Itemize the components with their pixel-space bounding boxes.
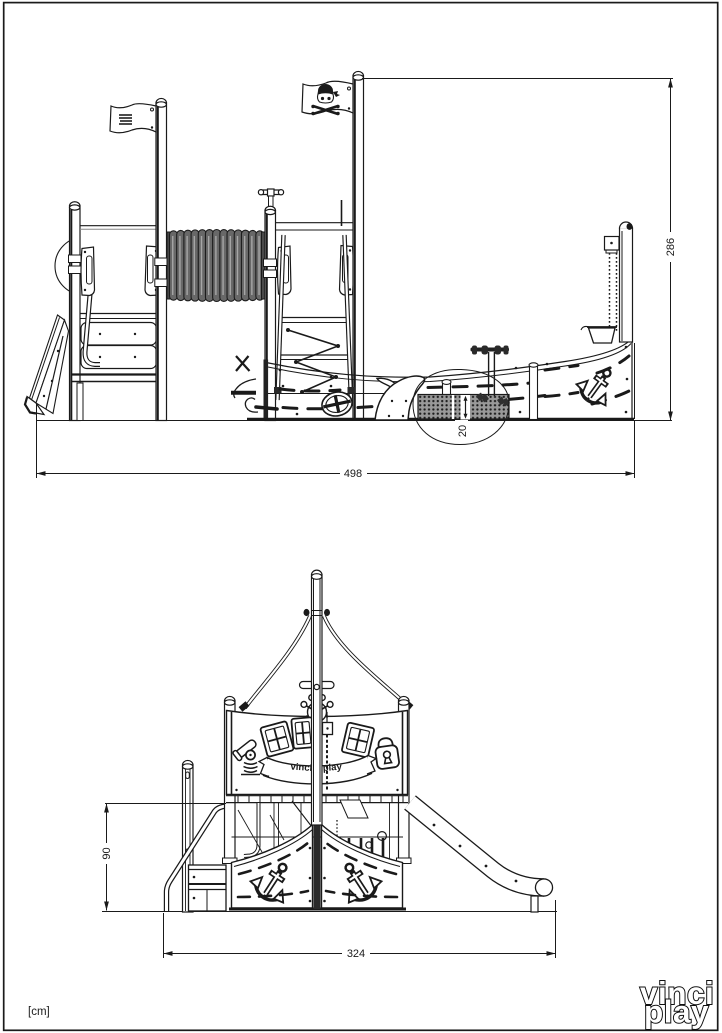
svg-text:vinci: vinci [290, 762, 312, 774]
svg-text:286: 286 [665, 238, 677, 256]
svg-text:play: play [322, 762, 342, 774]
svg-text:498: 498 [344, 468, 362, 480]
svg-text:90: 90 [101, 847, 113, 859]
svg-text:20: 20 [457, 425, 469, 437]
svg-text:324: 324 [347, 948, 365, 960]
svg-text:play: play [644, 994, 709, 1030]
svg-text:[cm]: [cm] [28, 1006, 50, 1018]
